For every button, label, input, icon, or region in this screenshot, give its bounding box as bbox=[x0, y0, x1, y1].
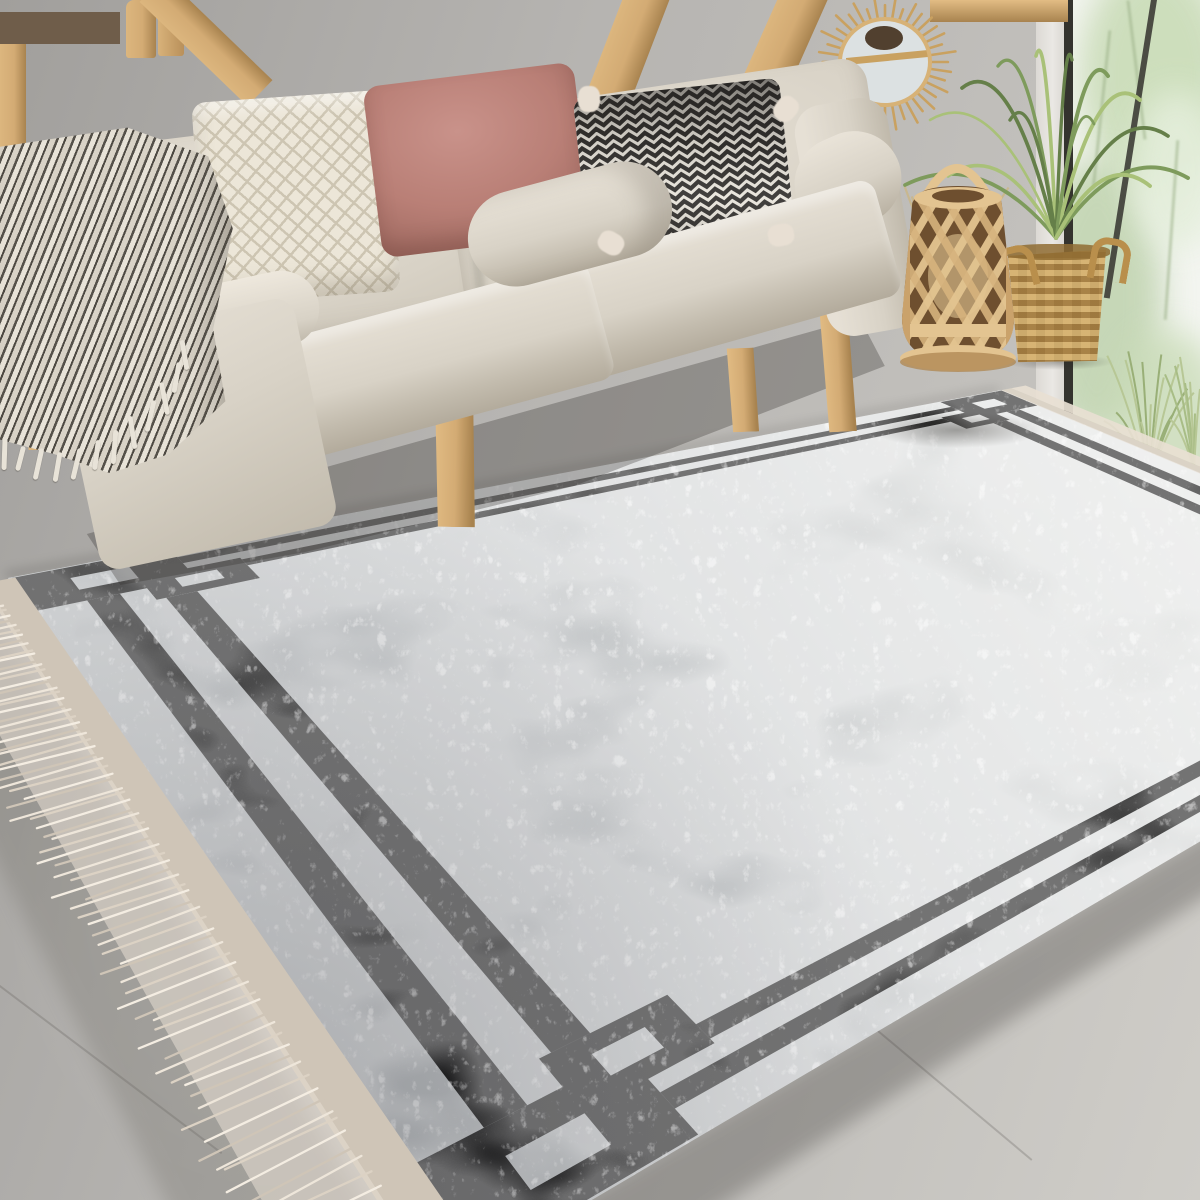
lantern-opening bbox=[932, 190, 984, 203]
lantern-lattice bbox=[878, 188, 1038, 368]
living-room-photo bbox=[0, 0, 1200, 1200]
wood-lantern bbox=[878, 128, 1038, 380]
blanket-tassel bbox=[1, 438, 7, 470]
lantern-shadow bbox=[872, 412, 1042, 448]
pillow-tassel bbox=[578, 86, 600, 112]
